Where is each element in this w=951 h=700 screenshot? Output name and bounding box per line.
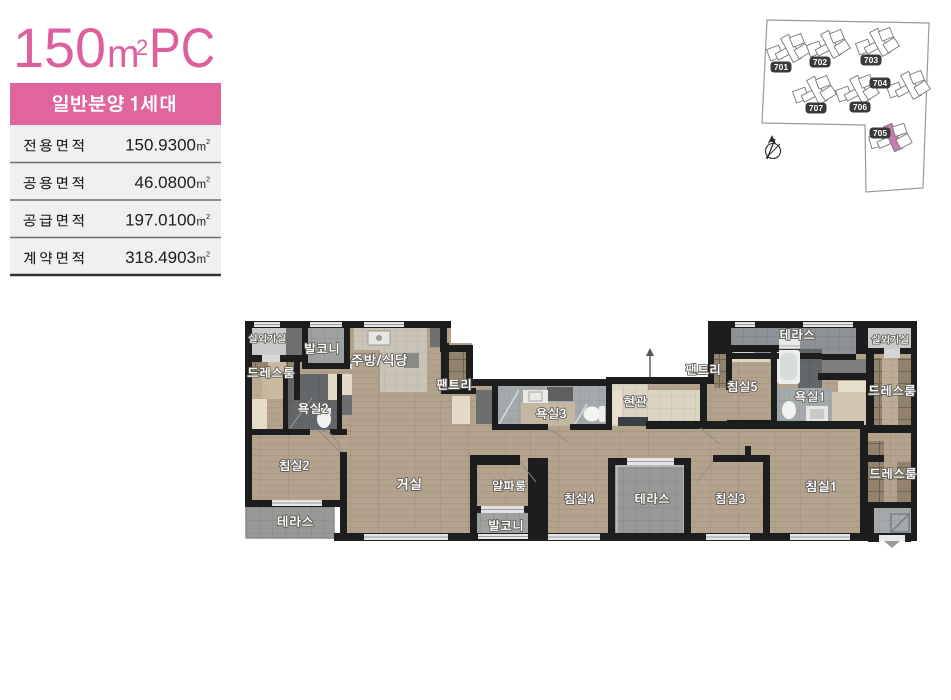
svg-text:2: 2 bbox=[206, 175, 210, 184]
svg-text:PC: PC bbox=[149, 16, 215, 79]
svg-text:2: 2 bbox=[206, 212, 210, 221]
svg-text:m: m bbox=[197, 217, 207, 229]
svg-text:46.0800: 46.0800 bbox=[135, 173, 196, 192]
svg-text:m: m bbox=[107, 33, 140, 76]
svg-text:150.9300: 150.9300 bbox=[125, 136, 196, 155]
svg-text:707: 707 bbox=[809, 103, 823, 113]
svg-text:704: 704 bbox=[873, 78, 887, 88]
svg-text:m: m bbox=[197, 142, 207, 154]
svg-text:2: 2 bbox=[206, 250, 210, 259]
svg-text:318.4903: 318.4903 bbox=[125, 248, 196, 267]
svg-text:m: m bbox=[197, 179, 207, 191]
svg-text:m: m bbox=[197, 254, 207, 266]
svg-text:197.0100: 197.0100 bbox=[125, 211, 196, 230]
svg-text:2: 2 bbox=[136, 35, 148, 60]
svg-text:702: 702 bbox=[813, 57, 827, 67]
svg-text:703: 703 bbox=[864, 55, 878, 65]
svg-text:2: 2 bbox=[206, 137, 210, 146]
svg-text:150: 150 bbox=[13, 16, 106, 79]
svg-text:706: 706 bbox=[853, 102, 867, 112]
svg-text:705: 705 bbox=[873, 128, 887, 138]
svg-text:701: 701 bbox=[774, 62, 788, 72]
